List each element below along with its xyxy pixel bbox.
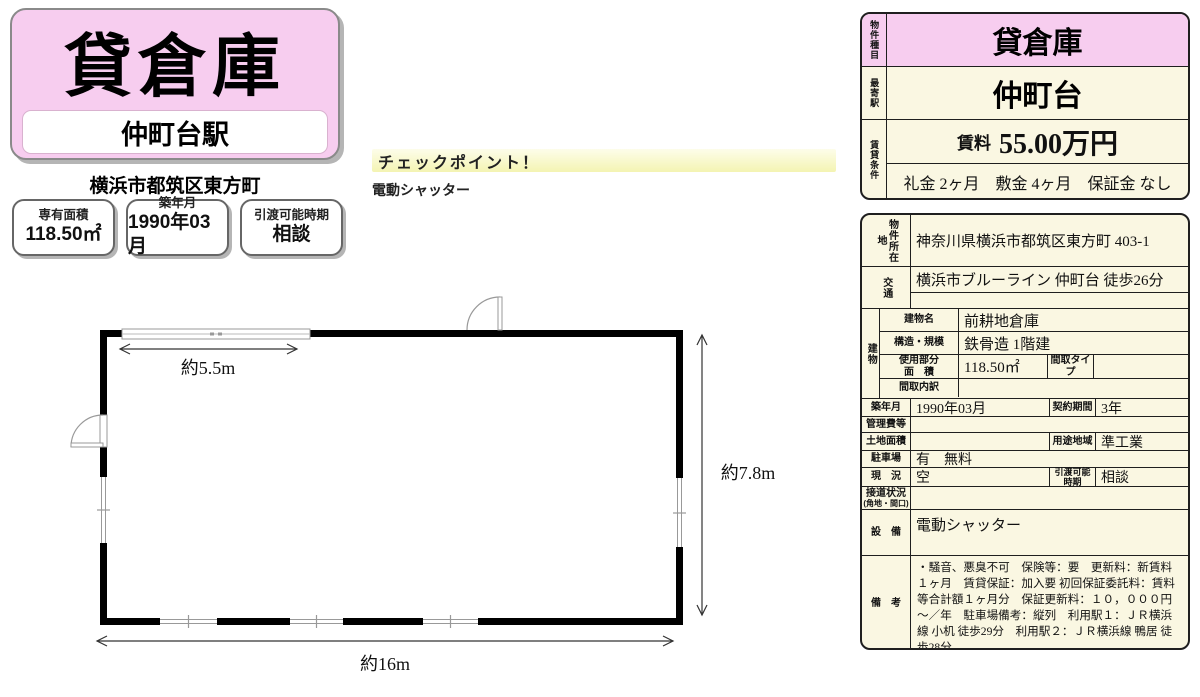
- building-name-value: 前耕地倉庫: [959, 309, 1188, 331]
- deposit-terms: 礼金 2ヶ月 敷金 4ヶ月 保証金 なし: [887, 164, 1188, 200]
- dimension-label-depth: 約7.8m: [721, 463, 776, 483]
- floor-plan-drawing: 約5.5m 約7.8m 約16m: [60, 285, 790, 695]
- floor-plan: 約5.5m 約7.8m 約16m: [60, 285, 790, 695]
- summary-value: 1990年03月: [128, 211, 227, 259]
- row-equipment: 設 備 電動シャッター: [862, 509, 1188, 555]
- row-building-group: 建物 建物名 前耕地倉庫 構造・規模 鉄骨造 1階建 使用部分 面 積 118.…: [862, 308, 1188, 398]
- access-label: 交通: [862, 267, 911, 308]
- parking-value: 有 無料: [911, 451, 1188, 467]
- used-area-label-line1: 使用部分: [899, 355, 939, 367]
- row-location: 物件所在地 神奈川県横浜市都筑区東方町 403-1: [862, 215, 1188, 266]
- door-top: [467, 297, 502, 330]
- remarks-label: 備 考: [862, 556, 911, 650]
- window-bottom-3: [423, 615, 478, 628]
- row-access: 交通 横浜市ブルーライン 仲町台 徒歩26分: [862, 266, 1188, 308]
- rental-terms-label: 賃貸条件: [862, 120, 887, 200]
- row-current-status: 現 況 空 引渡可能 時期 相談: [862, 467, 1188, 486]
- road-condition-label: 接道状況 (角地・間口): [862, 487, 911, 509]
- price-header-table: 物件種目 貸倉庫 最寄駅 仲町台 賃貸条件 賃料 55.00万円 礼金 2ヶ月 …: [860, 12, 1190, 200]
- row-built: 築年月 1990年03月 契約期間 3年: [862, 398, 1188, 416]
- door-left: [71, 415, 107, 447]
- window-left: [97, 477, 110, 543]
- handover-label-line2: 時期: [1063, 477, 1081, 487]
- property-type-title: 貸倉庫: [12, 10, 338, 110]
- nearest-station-value: 仲町台: [887, 67, 1188, 119]
- row-land-area: 土地面積 用途地域 準工業: [862, 432, 1188, 450]
- station-name-box: 仲町台駅: [22, 110, 328, 154]
- zoning-value: 準工業: [1096, 433, 1188, 450]
- used-area-label-line2: 面 積: [904, 367, 934, 379]
- structure-label: 構造・規模: [880, 332, 959, 354]
- land-area-value: [911, 433, 1049, 450]
- handover-label: 引渡可能 時期: [1049, 468, 1096, 486]
- rent-line: 賃料 55.00万円: [887, 120, 1188, 164]
- rent-label: 賃料: [957, 129, 991, 154]
- summary-box-built: 築年月 1990年03月: [126, 199, 229, 256]
- summary-value: 118.50㎡: [25, 223, 101, 247]
- property-type-value: 貸倉庫: [887, 14, 1188, 66]
- checkpoint-item: 電動シャッター: [372, 180, 470, 200]
- location-value: 神奈川県横浜市都筑区東方町 403-1: [911, 215, 1188, 266]
- built-label: 築年月: [862, 399, 911, 416]
- handover-value: 相談: [1096, 468, 1188, 486]
- property-type-label: 物件種目: [862, 14, 887, 66]
- dimension-arrow-width: [97, 636, 673, 646]
- land-area-label: 土地面積: [862, 433, 911, 450]
- summary-label: 築年月: [159, 196, 197, 211]
- row-property-type: 物件種目 貸倉庫: [862, 14, 1188, 66]
- dimension-arrow-shutter: [120, 344, 297, 354]
- summary-label: 専有面積: [38, 208, 88, 223]
- window-bottom-2: [290, 615, 343, 628]
- summary-box-handover: 引渡可能時期 相談: [240, 199, 343, 256]
- title-card: 貸倉庫 仲町台駅: [10, 8, 340, 160]
- checkpoint-header: チェックポイント！: [372, 149, 836, 172]
- dimension-arrow-depth: [697, 335, 707, 615]
- window-bottom-1: [160, 615, 217, 628]
- used-area-label: 使用部分 面 積: [880, 355, 959, 378]
- nearest-station-label: 最寄駅: [862, 67, 887, 119]
- layout-detail-value: [959, 379, 1188, 397]
- row-structure: 構造・規模 鉄骨造 1階建: [880, 331, 1188, 354]
- row-layout-detail: 間取内訳: [880, 378, 1188, 397]
- dimension-label-shutter: 約5.5m: [181, 358, 236, 378]
- building-label: 建物: [862, 309, 880, 398]
- window-right: [673, 478, 686, 547]
- structure-value: 鉄骨造 1階建: [959, 332, 1188, 354]
- road-condition-label-line2: (角地・間口): [863, 499, 908, 508]
- row-parking: 駐車場 有 無料: [862, 450, 1188, 467]
- wall-right: [676, 330, 683, 625]
- handover-label-line1: 引渡可能: [1054, 467, 1090, 477]
- station-name: 仲町台駅: [121, 113, 229, 152]
- management-fee-label: 管理費等: [862, 417, 911, 432]
- layout-type-value: [1094, 355, 1188, 378]
- listing-sheet: 貸倉庫 仲町台駅 横浜市都筑区東方町 専有面積 118.50㎡ 築年月 1990…: [0, 0, 1200, 697]
- row-road-condition: 接道状況 (角地・間口): [862, 486, 1188, 509]
- location-label: 物件所在地: [862, 215, 911, 266]
- address-line: 横浜市都筑区東方町: [10, 171, 340, 198]
- row-remarks: 備 考 ・騒音、悪臭不可 保険等：要 更新料：新賃料１ヶ月 賃貸保証：加入要 初…: [862, 555, 1188, 650]
- built-value: 1990年03月: [911, 399, 1049, 416]
- dimension-label-width: 約16m: [360, 654, 410, 674]
- used-area-value: 118.50㎡: [959, 355, 1047, 378]
- row-management-fee: 管理費等: [862, 416, 1188, 432]
- access-value-2: [911, 293, 1188, 308]
- contract-value: 3年: [1096, 399, 1188, 416]
- building-name-label: 建物名: [880, 309, 959, 331]
- access-value: 横浜市ブルーライン 仲町台 徒歩26分: [911, 267, 1188, 293]
- current-status-label: 現 況: [862, 468, 911, 486]
- row-nearest-station: 最寄駅 仲町台: [862, 66, 1188, 119]
- row-rental-terms: 賃貸条件 賃料 55.00万円 礼金 2ヶ月 敷金 4ヶ月 保証金 なし: [862, 119, 1188, 200]
- summary-row: 専有面積 118.50㎡ 築年月 1990年03月 引渡可能時期 相談: [12, 199, 343, 256]
- rent-value: 55.00万円: [999, 122, 1118, 162]
- management-fee-value: [911, 417, 1188, 432]
- equipment-label: 設 備: [862, 510, 911, 555]
- current-status-value: 空: [911, 468, 1049, 486]
- row-building-name: 建物名 前耕地倉庫: [880, 309, 1188, 331]
- summary-box-area: 専有面積 118.50㎡: [12, 199, 115, 256]
- layout-detail-label: 間取内訳: [880, 379, 959, 397]
- contract-label: 契約期間: [1049, 399, 1096, 416]
- summary-value: 相談: [272, 223, 310, 247]
- zoning-label: 用途地域: [1049, 433, 1096, 450]
- road-condition-label-line1: 接道状況: [866, 488, 906, 500]
- layout-type-label: 間取タイプ: [1047, 355, 1094, 378]
- road-condition-value: [911, 487, 1188, 509]
- row-used-area: 使用部分 面 積 118.50㎡ 間取タイプ: [880, 354, 1188, 378]
- property-detail-table: 物件所在地 神奈川県横浜市都筑区東方町 403-1 交通 横浜市ブルーライン 仲…: [860, 213, 1190, 650]
- shutter-opening: [122, 329, 310, 339]
- equipment-value: 電動シャッター: [911, 510, 1188, 555]
- summary-label: 引渡可能時期: [254, 208, 329, 223]
- parking-label: 駐車場: [862, 451, 911, 467]
- remarks-value: ・騒音、悪臭不可 保険等：要 更新料：新賃料１ヶ月 賃貸保証：加入要 初回保証委…: [911, 556, 1188, 650]
